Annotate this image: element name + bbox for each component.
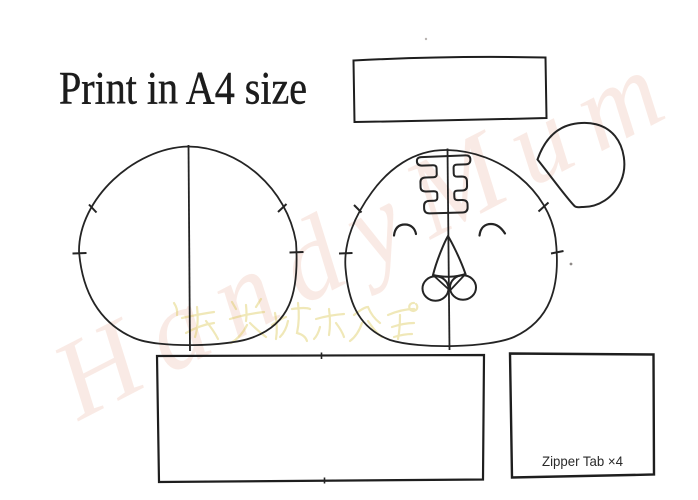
- svg-text:Print in A4 size: Print in A4 size: [59, 63, 307, 115]
- svg-text:Zipper Tab ×4: Zipper Tab ×4: [542, 453, 623, 469]
